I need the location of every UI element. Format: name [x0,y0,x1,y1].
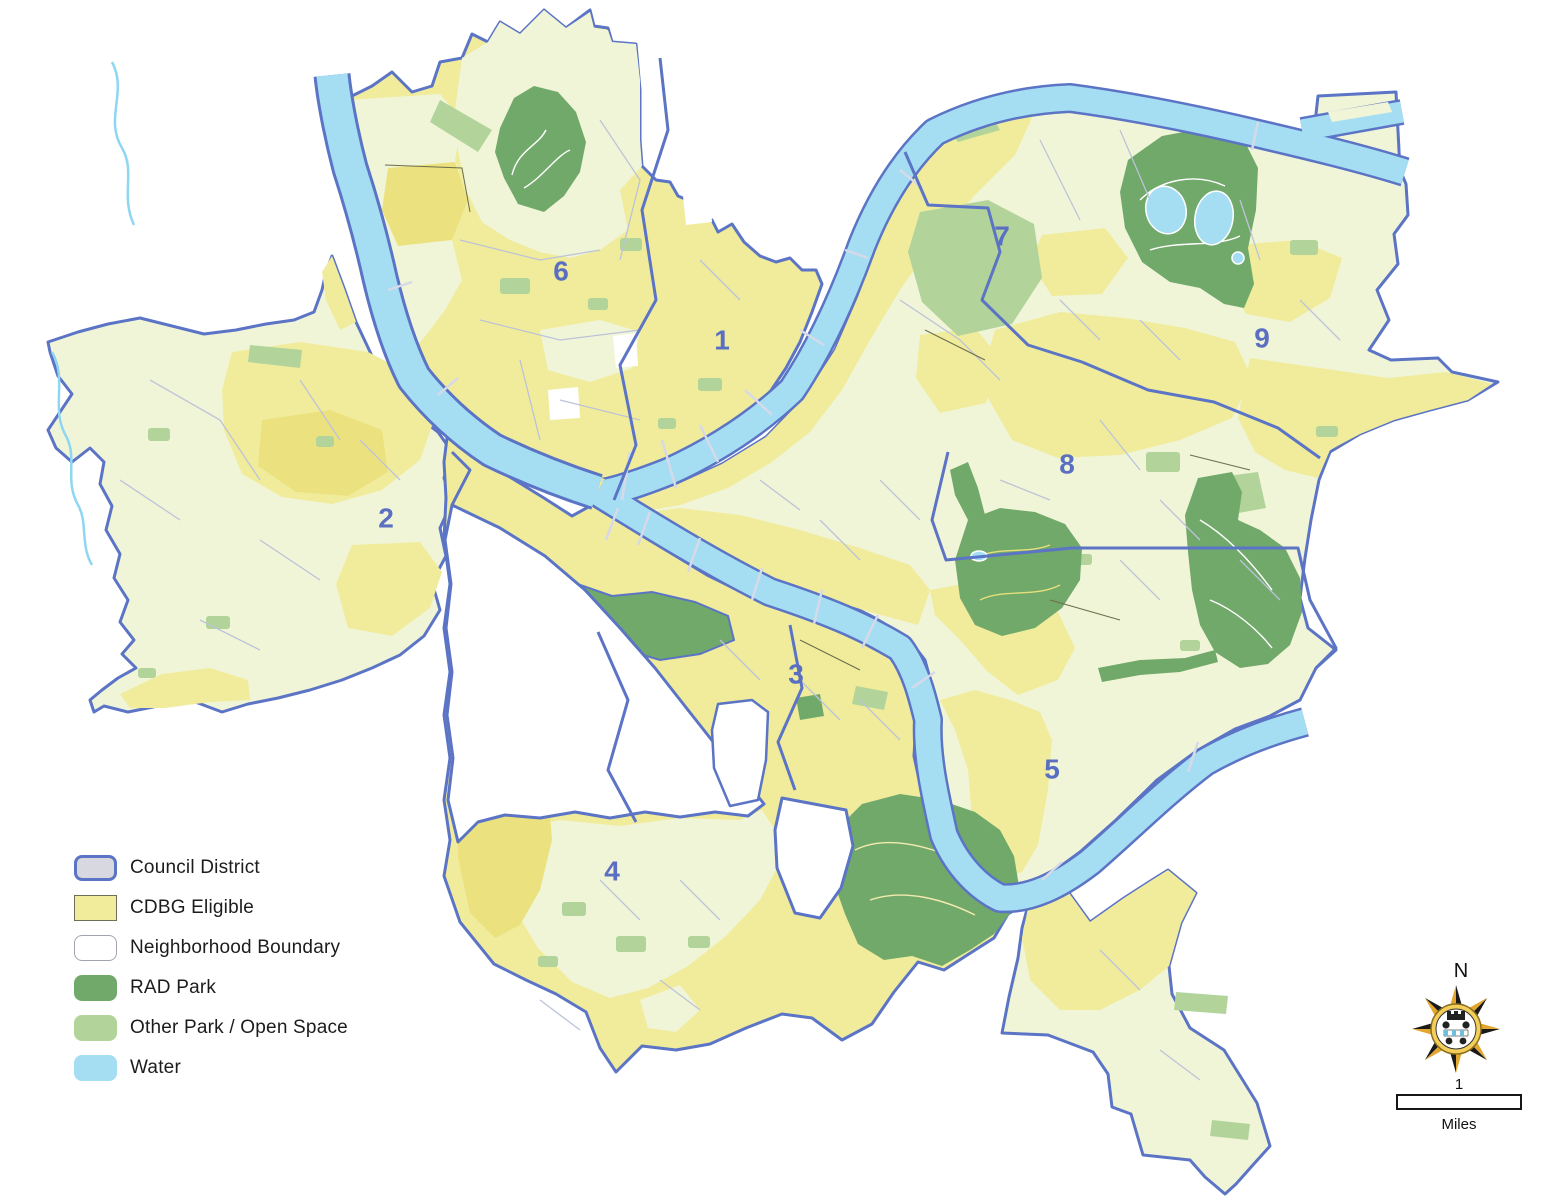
district-4-label: 4 [604,856,620,887]
legend-item-label: CDBG Eligible [130,897,254,919]
district-6-label: 6 [553,256,569,287]
legend-item-label: Council District [130,857,260,879]
legend-item-label: Other Park / Open Space [130,1017,348,1039]
scale-unit-label: Miles [1396,1116,1522,1133]
map-legend: Council District CDBG Eligible Neighborh… [74,848,348,1088]
compass: N [1408,960,1514,1075]
map-page: 123456789 Council District CDBG Eligible… [0,0,1556,1202]
legend-swatch-icon [74,895,117,921]
north-label: N [1408,960,1514,983]
scale-value-label: 1 [1396,1076,1522,1094]
district-1-label: 1 [714,325,730,356]
compass-rose-icon [1408,983,1504,1075]
legend-item: Council District [74,848,348,888]
scale-bar-rect [1396,1094,1522,1110]
legend-item-label: Water [130,1057,181,1079]
district-9-label: 9 [1254,323,1270,354]
legend-swatch-icon [74,975,117,1001]
district-2-label: 2 [378,503,394,534]
legend-swatch-icon [74,935,117,961]
legend-swatch-icon [74,1015,117,1041]
legend-item-label: RAD Park [130,977,216,999]
legend-item-label: Neighborhood Boundary [130,937,340,959]
legend-swatch-icon [74,1055,117,1081]
legend-swatch-icon [74,855,117,881]
district-8-label: 8 [1059,449,1075,480]
compass-star [1412,985,1500,1073]
legend-item: Neighborhood Boundary [74,928,348,968]
district-3-label: 3 [788,659,804,690]
legend-item: Other Park / Open Space [74,1008,348,1048]
district-5-label: 5 [1044,754,1060,785]
legend-item: RAD Park [74,968,348,1008]
district-7-label: 7 [994,221,1010,252]
legend-item: Water [74,1048,348,1088]
legend-item: CDBG Eligible [74,888,348,928]
scale-bar: 1 Miles [1396,1076,1522,1133]
